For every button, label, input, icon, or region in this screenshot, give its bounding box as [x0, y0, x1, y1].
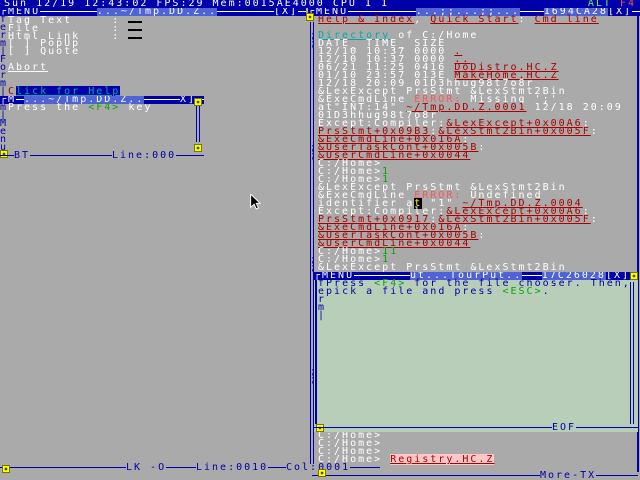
text-segment: key — [120, 102, 152, 113]
scroll-up-icon[interactable] — [306, 13, 314, 21]
file-key-dialog: ┌M ...~/Tmp.DD.Z.. X] m|Menu Press the <… — [0, 96, 204, 160]
dialog-right-border — [196, 106, 200, 142]
left-window-border-letters: ferm|Form| — [0, 16, 8, 96]
border-letter — [310, 96, 318, 104]
text-line: r — [318, 296, 631, 304]
border-letter — [310, 56, 318, 64]
green-window-left-border — [315, 280, 317, 424]
text-line: Press the <F4> key — [8, 104, 152, 112]
border-letter — [310, 88, 318, 96]
border-letter — [310, 440, 318, 448]
border-letter — [310, 48, 318, 56]
line-indicator: Line:0010 — [196, 464, 268, 472]
border-letter — [310, 200, 318, 208]
text-line — [8, 72, 142, 80]
eof-indicator: EOF — [552, 424, 576, 432]
left-window-content: Tag Text : File : Html Link : [ ] PopUp[… — [8, 16, 142, 96]
system-status-text: Sun 12/19 12:43:02 FPS:29 Mem:0015AE4000… — [4, 0, 389, 8]
top-status-bar: Sun 12/19 12:43:02 FPS:29 Mem:0015AE4000… — [0, 0, 640, 8]
border-letter — [310, 120, 318, 128]
templeos-screen: Sun 12/19 12:43:02 FPS:29 Mem:0015AE4000… — [0, 0, 640, 480]
border-letter — [310, 224, 318, 232]
border-letter — [310, 232, 318, 240]
checkbox[interactable]: [ ] — [8, 46, 40, 57]
border-letter — [310, 192, 318, 200]
text-line: | — [318, 312, 631, 320]
text-segment: 12/18 20:09 — [527, 102, 623, 113]
scroll-left-icon[interactable] — [318, 469, 326, 477]
border-letter — [310, 80, 318, 88]
text-segment: Press the — [8, 102, 88, 113]
mouse-cursor — [250, 194, 262, 210]
dialog-line-indicator: Line:000 — [112, 152, 176, 160]
dialog-border-letters: m|Menu — [0, 104, 8, 152]
text-segment: Quote — [40, 46, 80, 57]
link[interactable]: Abort — [8, 62, 48, 73]
border-letter — [310, 448, 318, 456]
text-line: &LexExcept PrsStmt &LexStmt2Bin — [318, 264, 623, 272]
text-segment: : — [519, 14, 535, 25]
border-letter: ; — [310, 40, 318, 48]
text-input[interactable] — [128, 16, 142, 23]
dialog-status-bt: BT — [14, 152, 30, 160]
text-line: epick a file and press <ESC>. — [318, 288, 631, 296]
text-segment: . — [543, 286, 551, 297]
border-letter — [310, 112, 318, 120]
text-segment: : — [591, 214, 599, 225]
border-letter — [310, 160, 318, 168]
border-letter — [310, 208, 318, 216]
scroll-down-icon[interactable] — [194, 144, 202, 152]
scroll-up-icon[interactable] — [194, 98, 202, 106]
text-segment: : — [591, 126, 599, 137]
link[interactable]: Cmd line — [535, 14, 599, 25]
border-letter: ; — [310, 264, 318, 272]
terminal-output: Help & Index, Quick Start: Cmd lineDirec… — [318, 16, 623, 272]
close-icon[interactable]: [X] — [274, 8, 298, 16]
text-segment: pick a file and press — [326, 286, 502, 297]
text-segment: , — [414, 14, 430, 25]
text-line: m — [318, 304, 631, 312]
border-letter: | — [318, 310, 326, 321]
scroll-up-icon[interactable] — [630, 272, 638, 280]
text-input[interactable] — [128, 32, 142, 39]
border-letter: | — [0, 88, 8, 96]
text-input[interactable] — [128, 24, 142, 31]
dialog-message: Press the <F4> key — [8, 104, 152, 112]
green-window-right-border — [630, 282, 634, 424]
text-line: Help & Index, Quick Start: Cmd line — [318, 16, 623, 24]
text-segment: : — [478, 230, 486, 241]
border-letter — [310, 176, 318, 184]
lock-indicator: LK -O — [126, 464, 166, 472]
border-letter: ; — [310, 152, 318, 160]
right-window-bottom-border: More-TX — [312, 472, 638, 480]
border-letter — [310, 168, 318, 176]
green-help-window: ┌MENU ut...TourPut.. 17C26028 [X] fPress… — [314, 272, 638, 432]
link[interactable]: Help & Index — [318, 14, 414, 25]
link[interactable]: Quick Start — [430, 14, 518, 25]
scroll-left-icon[interactable] — [2, 465, 10, 473]
text-segment: : — [478, 142, 486, 153]
border-letter — [310, 184, 318, 192]
text-line: Abort — [8, 64, 142, 72]
border-letter — [310, 72, 318, 80]
border-letter — [310, 240, 318, 248]
border-letter — [310, 216, 318, 224]
hotkey-hint: ALT F4 — [588, 0, 636, 8]
dialog-bottom-border: BT Line:000 — [0, 152, 204, 160]
border-letter — [310, 432, 318, 440]
terminal-prompt-lines: C:/Home>C:/Home>C:/Home>C:/Home> Registr… — [318, 432, 494, 464]
green-window-content: fPress <F4> for the file chooser. Then,e… — [318, 280, 631, 320]
text-line: [ ] Quote — [8, 48, 142, 56]
link[interactable]: Registry.HC.Z — [390, 454, 494, 465]
left-editor-window: ┌MENU ...~/Tmp.DD.Z.. [X] ferm|Form| Tag… — [0, 8, 306, 472]
text-line: Click for Help — [8, 88, 142, 96]
more-tx-indicator: More-TX — [540, 472, 596, 480]
border-letter — [310, 128, 318, 136]
border-letter — [310, 64, 318, 72]
green-window-bottom-border: EOF — [314, 424, 638, 432]
border-letter — [310, 104, 318, 112]
close-icon[interactable]: [X] — [608, 8, 632, 16]
text-segment: <ESC> — [502, 286, 542, 297]
text-segment: <F4> — [88, 102, 120, 113]
